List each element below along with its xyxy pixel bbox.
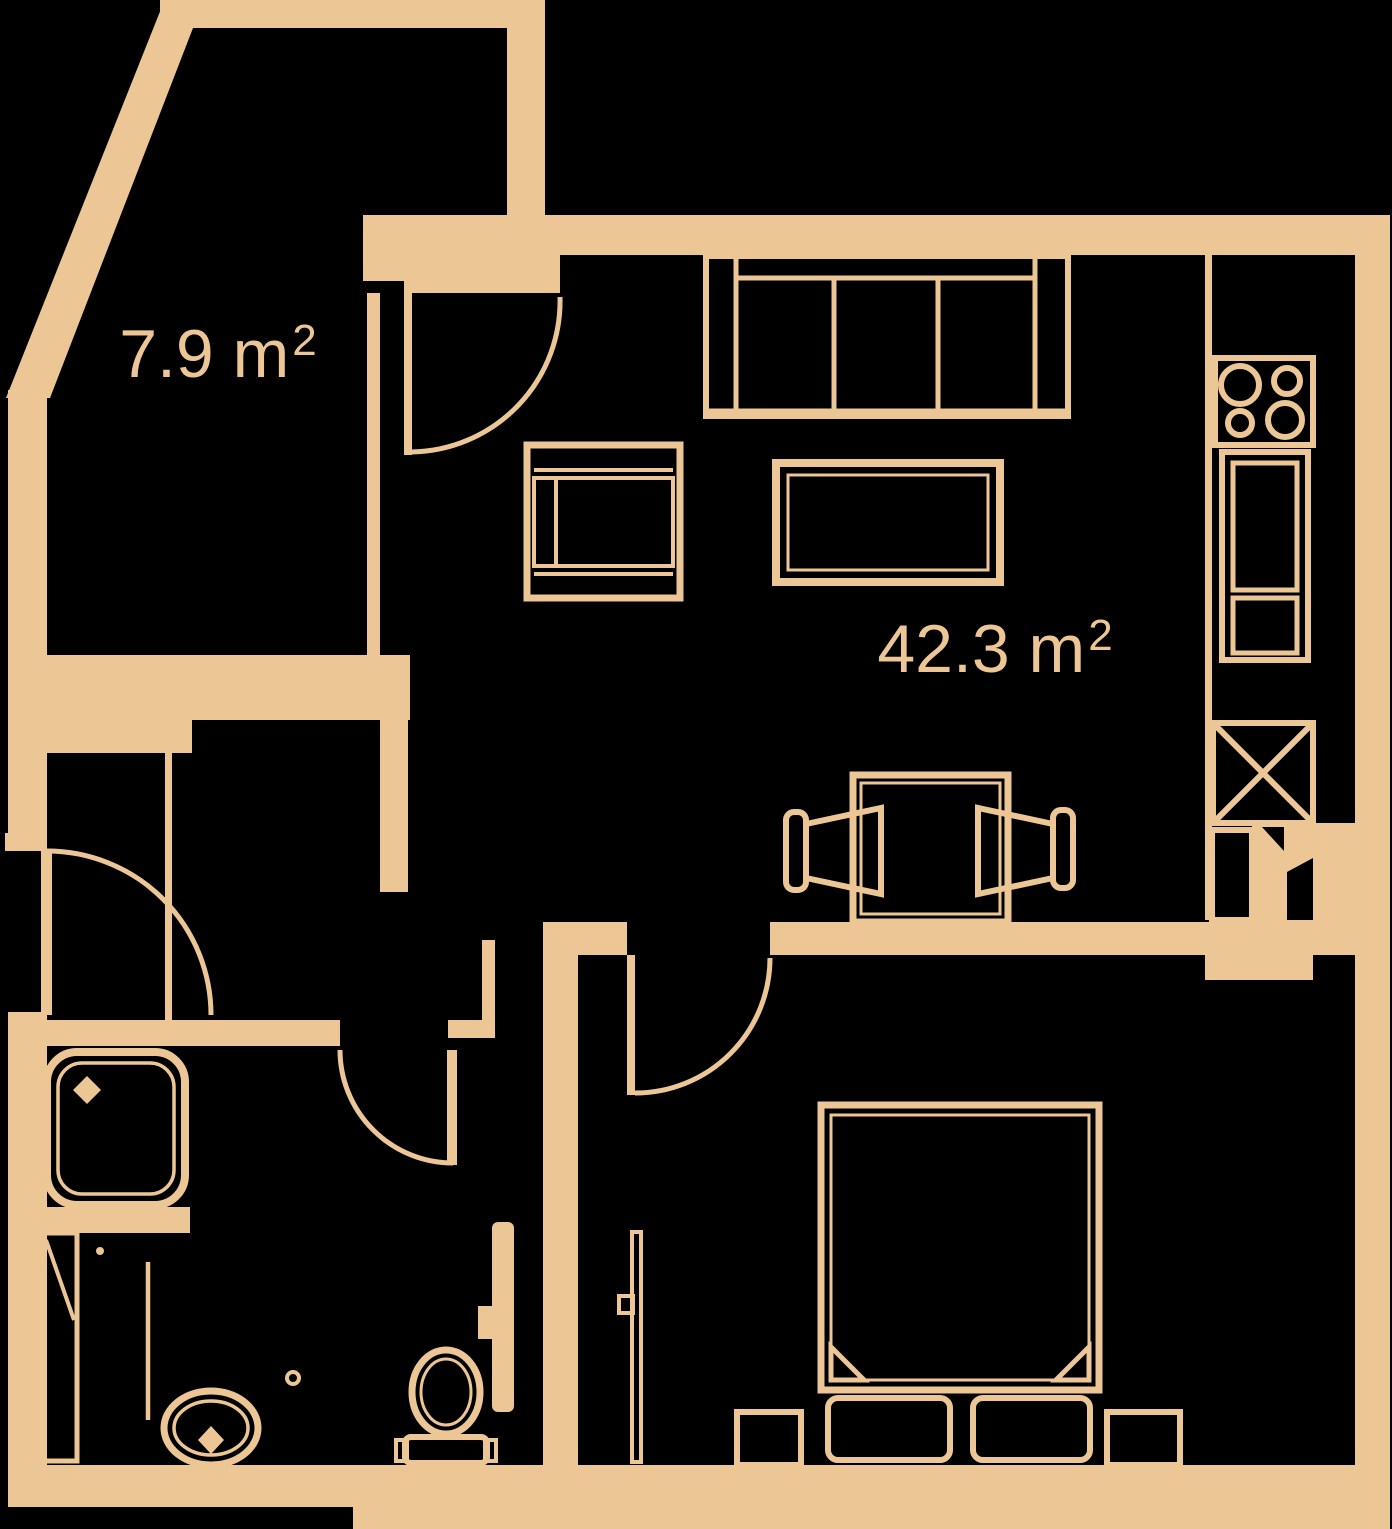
faucet-icon bbox=[198, 1426, 224, 1454]
wall-top-small-room bbox=[160, 0, 545, 28]
bathroom-fixtures bbox=[43, 1052, 496, 1465]
wall-door-chunk bbox=[363, 215, 560, 293]
wall-left-stub-a bbox=[5, 833, 27, 851]
small-room-door-leaf bbox=[404, 293, 412, 455]
closet-strip-icon bbox=[619, 1232, 641, 1462]
kitchen-end-cabinet bbox=[1212, 830, 1252, 920]
wall-hall-west bbox=[165, 753, 172, 1020]
bedroom-furniture bbox=[619, 1105, 1180, 1465]
oven-icon bbox=[1222, 452, 1308, 660]
entrance-door-leaf bbox=[41, 851, 52, 1015]
nightstand-right-icon bbox=[1107, 1412, 1180, 1465]
desk-icon bbox=[853, 775, 1008, 922]
floor-drain-icon bbox=[287, 1372, 299, 1384]
washing-machine-icon bbox=[43, 1233, 77, 1461]
wall-vert-top bbox=[507, 28, 545, 218]
blanket-fold-right bbox=[1056, 1347, 1089, 1380]
floor-plan-canvas: 7.9 m2 42.3 m2 bbox=[0, 0, 1392, 1529]
wall-shower-partition bbox=[8, 1207, 190, 1233]
chair-left-icon bbox=[786, 808, 881, 894]
bed-icon bbox=[821, 1105, 1099, 1390]
wall-bath-top bbox=[8, 1020, 340, 1046]
wall-smallroom-east bbox=[367, 293, 380, 655]
bathroom-door-leaf bbox=[447, 1050, 457, 1165]
bedroom-door-arc bbox=[635, 958, 770, 1093]
wall-kitchen-bottom bbox=[1205, 955, 1313, 980]
blanket-fold-left bbox=[831, 1347, 864, 1380]
wall-bottom-right bbox=[353, 1465, 1390, 1529]
shower-drain-icon bbox=[73, 1076, 101, 1104]
wall-left-upper bbox=[8, 390, 47, 851]
sofa-icon bbox=[706, 256, 1068, 416]
pillow-right-icon bbox=[973, 1398, 1090, 1460]
living-room-area-label: 42.3 m2 bbox=[877, 611, 1112, 687]
pillow-left-icon bbox=[828, 1398, 950, 1460]
living-room-furniture bbox=[527, 256, 1073, 922]
wall-bath-east-stub bbox=[478, 1306, 493, 1339]
wall-right bbox=[1355, 215, 1390, 1469]
nightstand-left-icon bbox=[737, 1412, 801, 1465]
small-room-area-label: 7.9 m2 bbox=[119, 316, 317, 392]
toilet-icon bbox=[396, 1350, 496, 1463]
wall-living-top bbox=[545, 215, 1390, 255]
walls bbox=[5, 0, 1390, 1529]
coffee-table-icon bbox=[776, 463, 1000, 582]
small-room-door-arc bbox=[412, 297, 560, 452]
wall-bath-east bbox=[492, 1222, 514, 1412]
room-labels: 7.9 m2 42.3 m2 bbox=[119, 316, 1112, 687]
fridge-icon bbox=[1213, 723, 1313, 823]
wall-bedroom-west bbox=[543, 922, 578, 1465]
wall-corridor-stub bbox=[380, 720, 408, 892]
chair-right-icon bbox=[978, 808, 1073, 894]
entrance-door-arc bbox=[47, 851, 211, 1015]
wall-smallroom-bottom-left bbox=[47, 655, 192, 753]
bathroom-door-arc bbox=[340, 1050, 453, 1163]
wall-smallroom-bottom-right bbox=[192, 655, 410, 720]
wall-bottom-left bbox=[8, 1465, 353, 1507]
wall-bedroom-top-left bbox=[543, 922, 627, 955]
kitchen bbox=[1205, 255, 1313, 920]
floor-plan: 7.9 m2 42.3 m2 bbox=[0, 0, 1392, 1529]
shower-icon bbox=[47, 1052, 185, 1205]
tv-cabinet-icon bbox=[527, 445, 680, 598]
bedroom-door-leaf bbox=[627, 955, 635, 1095]
washbasin-icon bbox=[164, 1391, 258, 1465]
wall-dot bbox=[96, 1247, 104, 1255]
wall-bath-jamb-v bbox=[482, 940, 495, 1038]
cooktop-icon bbox=[1215, 358, 1313, 445]
